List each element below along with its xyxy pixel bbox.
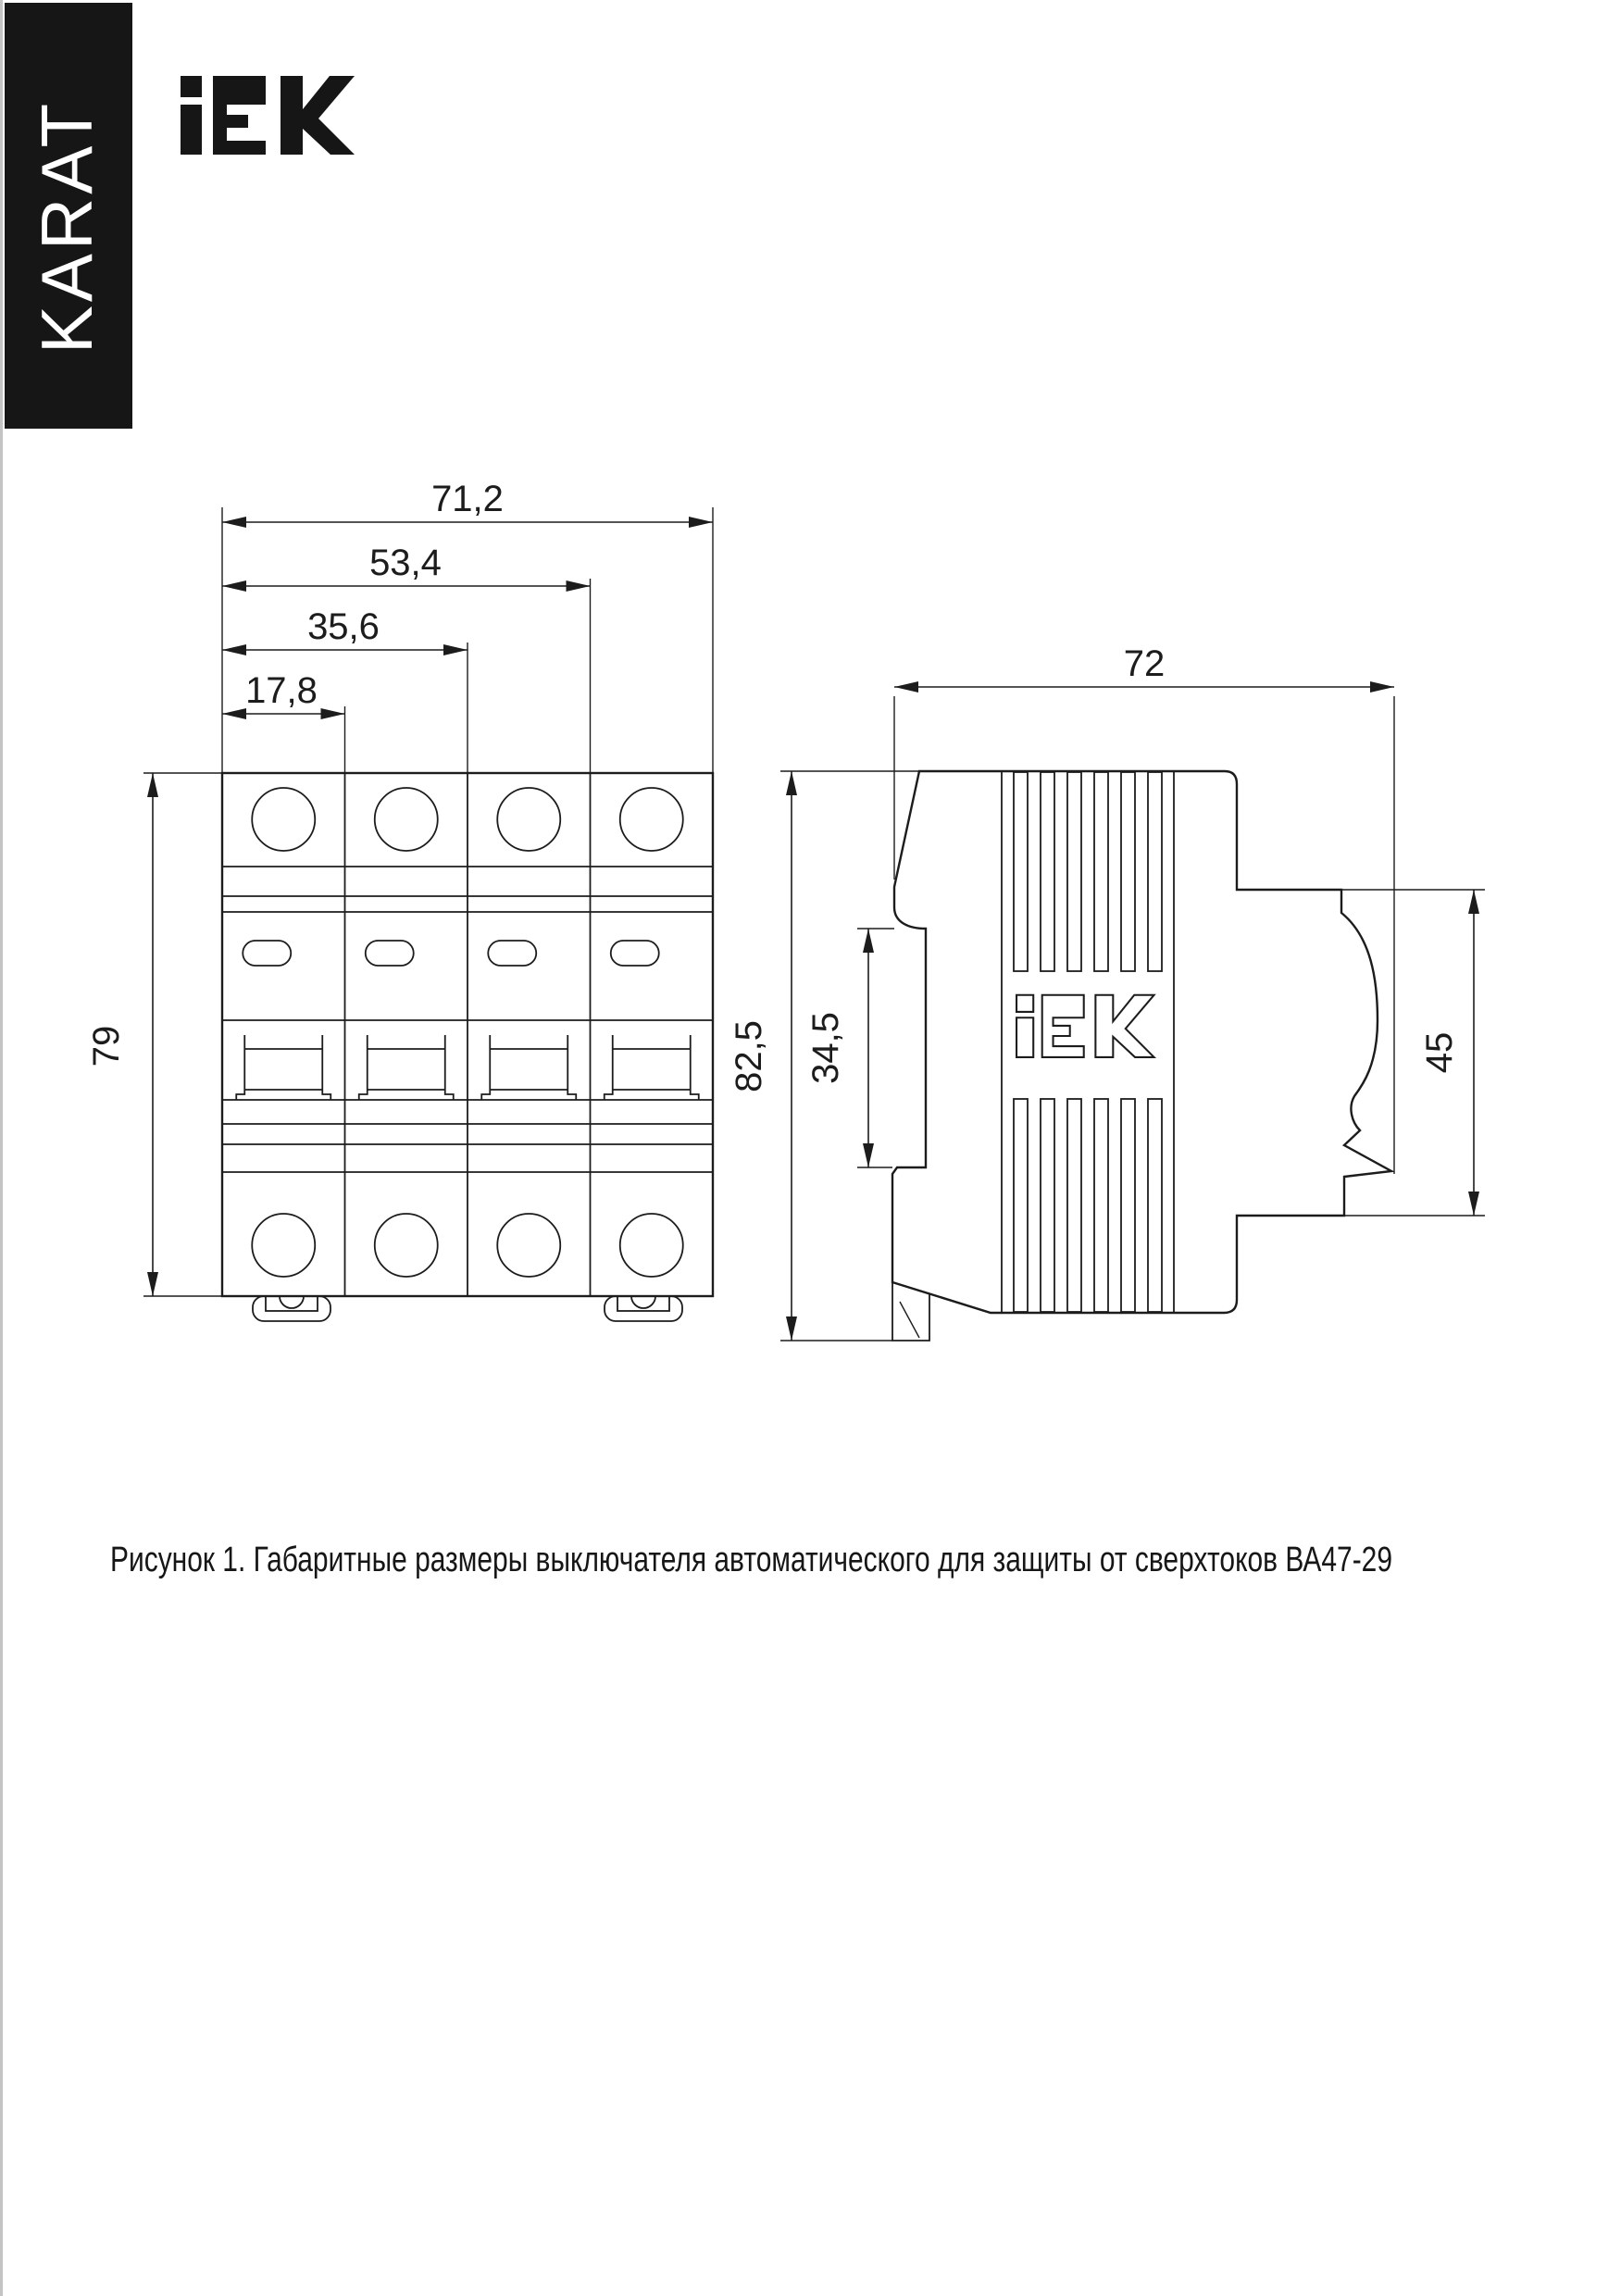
din-clip-arc (631, 1296, 655, 1308)
vent-slot (1094, 772, 1108, 971)
side-body-outline (892, 771, 1391, 1313)
front-extension-lines (143, 507, 713, 1296)
terminal-screw-hole (375, 1214, 438, 1277)
dimension-label-width-two: 35,6 (307, 606, 380, 647)
side-view: 72 82,5 34,5 45 (729, 643, 1485, 1341)
terminal-screw-hole (620, 1214, 683, 1277)
karat-banner-text: KARAT (26, 100, 107, 354)
karat-banner: KARAT (5, 3, 132, 429)
marking-window (366, 941, 414, 966)
figure-caption: Рисунок 1. Габаритные размеры выключател… (110, 1541, 1392, 1579)
toggle-lever-front (236, 1035, 330, 1100)
vent-slot (1014, 772, 1028, 971)
toggle-lever-front (605, 1035, 699, 1100)
catalog-page: KARAT (0, 0, 1621, 2296)
terminal-screw-hole (497, 788, 560, 851)
vent-slot (1041, 772, 1054, 971)
page-edge (0, 0, 3, 2296)
toggle-lever-front (359, 1035, 454, 1100)
vent-slot (1041, 1099, 1054, 1312)
front-dimension-lines (153, 522, 713, 1296)
iek-logo (181, 76, 355, 155)
vent-slot (1148, 1099, 1162, 1312)
marking-window (611, 941, 659, 966)
dimension-label-width-one: 17,8 (245, 670, 318, 711)
toggle-lever-front (481, 1035, 576, 1100)
dimension-label-width-total: 71,2 (431, 479, 504, 519)
front-pole-dividers (345, 773, 591, 1296)
vent-slot (1067, 1099, 1081, 1312)
marking-window (488, 941, 536, 966)
vent-slot (1148, 772, 1162, 971)
terminal-screw-hole (620, 788, 683, 851)
vent-slot (1067, 772, 1081, 971)
terminal-screw-hole (252, 788, 315, 851)
din-clip-arc (280, 1296, 304, 1308)
terminal-screw-hole (375, 788, 438, 851)
dimension-label-height: 79 (86, 1026, 127, 1067)
dimension-label-front-module: 45 (1419, 1032, 1460, 1074)
din-clip-notch (900, 1302, 919, 1338)
vent-slot (1121, 1099, 1135, 1312)
terminal-screw-hole (252, 1214, 315, 1277)
dimension-label-width-three: 53,4 (369, 543, 442, 583)
marking-window (243, 941, 291, 966)
dimension-label-depth: 72 (1124, 643, 1166, 684)
vent-slot (1094, 1099, 1108, 1312)
vent-slot (1121, 772, 1135, 971)
terminal-screw-hole (497, 1214, 560, 1277)
iek-side-logo (1016, 995, 1154, 1057)
dimension-label-height-total: 82,5 (729, 1020, 769, 1092)
vent-slot (1014, 1099, 1028, 1312)
front-view: 71,2 53,4 35,6 17,8 79 (86, 479, 713, 1321)
dimension-label-rail-channel: 34,5 (805, 1012, 846, 1084)
